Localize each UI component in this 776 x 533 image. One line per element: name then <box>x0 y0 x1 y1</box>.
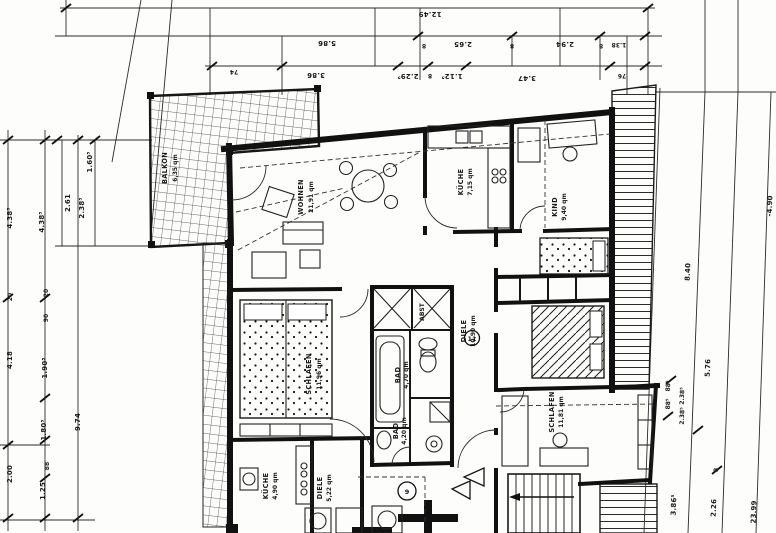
dim-1605: 1.60⁵ <box>86 151 94 172</box>
dim-1249: 12.49 <box>418 10 441 18</box>
dim-138: 1.38 <box>612 41 627 48</box>
dim-20a: 20 <box>7 293 14 301</box>
terrace-edge-hatch <box>203 243 230 527</box>
room-label-schlafen1: SCHLAFEN <box>305 353 313 394</box>
dim-20b: 20 <box>43 289 50 297</box>
dim-418: 4.18 <box>6 351 14 369</box>
entrance-triangle-2 <box>452 481 470 499</box>
sofa <box>283 222 323 244</box>
dim-8a: 8 <box>422 42 426 49</box>
dim-347: 3.47 <box>518 74 536 82</box>
armchair <box>262 187 294 218</box>
room-label-kind: KIND <box>551 197 559 217</box>
single-bed <box>540 238 608 274</box>
room-area-balkon: 6,35 qm <box>172 154 179 181</box>
sink <box>456 131 468 143</box>
round-basin <box>426 436 442 452</box>
dim-200: 2.00 <box>6 465 14 483</box>
dim-4385b: 4.38⁵ <box>38 211 46 232</box>
room-label-kueche2: KÜCHE <box>261 472 270 499</box>
dim-974: 9.74 <box>74 413 82 431</box>
room-area-schlafen2: 11,81 qm <box>558 396 565 428</box>
room-area-schlafen1: 11,96 qm <box>316 358 323 390</box>
dim-90: 90 <box>43 314 50 322</box>
dim-2399: 23.99 <box>750 500 759 523</box>
room-label-balkon: BALKON <box>161 152 169 184</box>
room-label-schlafen2: SCHLAFEN <box>548 391 556 432</box>
stair-band-right <box>612 85 656 389</box>
entrance-markers <box>452 468 484 499</box>
apartment-number-9-label: 9 <box>405 488 410 496</box>
washbasin <box>419 338 437 350</box>
wardrobe <box>240 424 332 436</box>
room-area-kueche1: 7,15 qm <box>467 168 474 195</box>
bedroom2-furniture <box>502 395 652 469</box>
toilet-2 <box>377 431 391 449</box>
room-area-bad1: 4,70 qm <box>403 361 410 388</box>
room-area-kueche2: 4,90 qm <box>272 472 279 499</box>
dim-2385-left: 2.38⁵ <box>78 197 86 218</box>
dim-1805: 1.80⁵ <box>40 419 48 440</box>
dim-885b: 88⁵ <box>665 398 672 410</box>
dim-226: 2.26 <box>710 499 719 517</box>
stove-burners <box>492 169 506 183</box>
double-bed-hatched <box>532 306 604 378</box>
dimension-labels-left: 1.60⁵ 2.61 2.38⁵ 4.38⁵ 4.38⁵ 20 20 90 4.… <box>6 151 94 500</box>
dim-8-right: 8 <box>713 468 720 472</box>
room-area-diele2: 5,22 qm <box>326 474 333 501</box>
room-label-kueche1: KÜCHE <box>456 168 465 195</box>
dim-8c: 8 <box>599 42 603 49</box>
room-area-kind: 9,40 qm <box>561 193 568 220</box>
dim-1125: 1.12⁵ <box>441 72 462 80</box>
room-area-wohnen: 21,91 qm <box>308 181 315 213</box>
dim-4385a: 4.38⁵ <box>6 207 14 228</box>
apartment-number-9: 9 <box>398 482 416 500</box>
dim-m490: -4.90 <box>766 195 775 216</box>
stair-band-bottom-right <box>600 484 657 533</box>
room-label-diele1: DIELE <box>460 319 468 342</box>
dim-88: 88 <box>44 462 51 470</box>
room-label-bad1: BAD <box>394 367 402 384</box>
room-area-bad2: 4,20 qm <box>401 417 408 444</box>
room-area-diele1: 10,90 qm <box>470 315 477 347</box>
dim-576: 5.76 <box>704 359 713 377</box>
desk-2 <box>540 448 588 466</box>
dim-76: 76 <box>618 72 626 79</box>
dining-table <box>352 170 384 202</box>
staircase <box>508 474 580 533</box>
dim-3865: 3.86⁵ <box>670 494 679 516</box>
desk <box>547 120 597 148</box>
dim-8d: 8 <box>428 72 432 79</box>
room-label-diele2: DIELE <box>316 476 324 499</box>
dim-2385a: 2.38⁵ <box>679 387 687 405</box>
entrance-triangle-1 <box>464 468 484 486</box>
dim-386: 3.86 <box>307 71 325 79</box>
dimension-grid-lines <box>0 0 776 533</box>
dim-1905: 1.90⁵ <box>41 357 49 378</box>
room-label-abst: ABST <box>419 302 426 321</box>
room-label-bad2: BAD <box>392 423 400 440</box>
floor-plan-sheet: 11 9 BALKON 6,35 qm WOHNEN 21,91 qm KÜCH… <box>0 0 776 533</box>
dim-586: 5.86 <box>318 39 336 47</box>
living-room-furniture <box>252 162 398 279</box>
dim-265: 2.65 <box>454 40 472 48</box>
stove-burners-2 <box>301 463 307 495</box>
dim-125: 1.25 <box>39 482 47 500</box>
dimension-labels-top: 12.49 5.86 2.65 2.94 1.38 8 8 8 74 3.86 … <box>230 10 627 82</box>
dim-2295: 2.29⁵ <box>397 72 418 80</box>
dim-840: 8.40 <box>684 263 693 281</box>
dim-8b: 8 <box>510 42 514 49</box>
dim-261: 2.61 <box>64 194 72 212</box>
toilet <box>420 352 436 372</box>
dim-294: 2.94 <box>556 40 574 48</box>
room-label-wohnen: WOHNEN <box>297 179 305 215</box>
dim-885a: 88⁵ <box>665 380 672 392</box>
dim-74: 74 <box>230 68 238 75</box>
desk-chair <box>563 147 577 161</box>
dim-2385b: 2.38⁵ <box>679 407 687 425</box>
